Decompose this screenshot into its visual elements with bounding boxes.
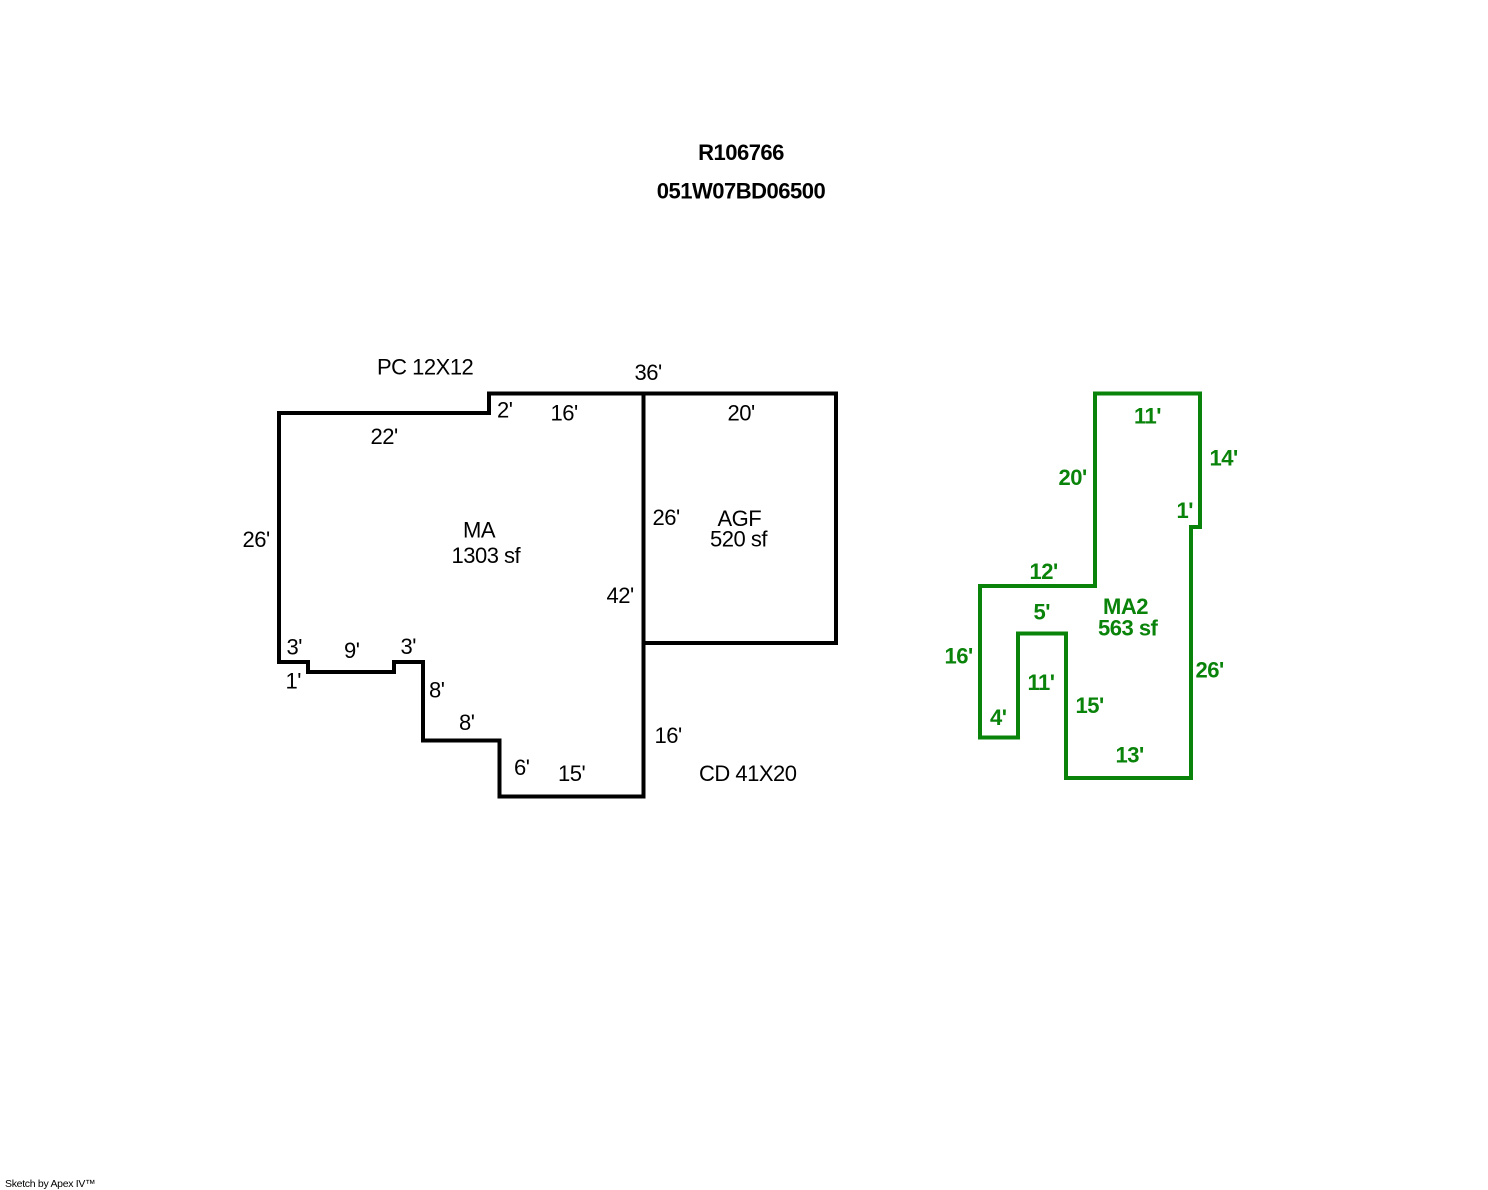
svg-text:MA: MA xyxy=(463,518,496,543)
svg-text:26': 26' xyxy=(1196,658,1224,683)
svg-text:520 sf: 520 sf xyxy=(710,527,768,552)
svg-text:16': 16' xyxy=(551,401,578,426)
svg-text:16': 16' xyxy=(945,644,973,669)
svg-text:4': 4' xyxy=(990,705,1007,730)
svg-text:Sketch by Apex IV™: Sketch by Apex IV™ xyxy=(5,1178,95,1190)
svg-text:11': 11' xyxy=(1028,670,1055,695)
svg-text:R106766: R106766 xyxy=(698,140,784,165)
svg-text:3': 3' xyxy=(401,634,417,659)
svg-text:14': 14' xyxy=(1210,446,1238,471)
svg-text:1303 sf: 1303 sf xyxy=(452,543,522,568)
svg-text:8': 8' xyxy=(429,678,445,703)
svg-text:15': 15' xyxy=(558,761,585,786)
svg-text:PC 12X12: PC 12X12 xyxy=(377,355,474,380)
svg-text:42': 42' xyxy=(607,583,634,608)
svg-text:5': 5' xyxy=(1034,600,1051,625)
svg-text:1': 1' xyxy=(1177,498,1194,523)
svg-text:26': 26' xyxy=(243,527,270,552)
svg-text:9': 9' xyxy=(344,638,360,663)
svg-text:15': 15' xyxy=(1076,693,1104,718)
svg-text:051W07BD06500: 051W07BD06500 xyxy=(657,179,826,204)
svg-text:563 sf: 563 sf xyxy=(1098,616,1159,641)
svg-text:6': 6' xyxy=(514,755,530,780)
svg-text:22': 22' xyxy=(371,424,398,449)
svg-text:20': 20' xyxy=(728,401,755,426)
svg-text:1': 1' xyxy=(286,669,302,694)
svg-text:3': 3' xyxy=(287,635,303,660)
svg-text:36': 36' xyxy=(635,360,662,385)
svg-text:2': 2' xyxy=(497,398,513,423)
svg-text:16': 16' xyxy=(655,723,682,748)
svg-text:13': 13' xyxy=(1116,743,1144,768)
svg-text:26': 26' xyxy=(653,505,680,530)
svg-text:CD 41X20: CD 41X20 xyxy=(699,761,797,786)
svg-text:11': 11' xyxy=(1134,404,1161,429)
svg-text:12': 12' xyxy=(1030,559,1058,584)
svg-text:20': 20' xyxy=(1059,465,1087,490)
svg-text:8': 8' xyxy=(459,710,475,735)
